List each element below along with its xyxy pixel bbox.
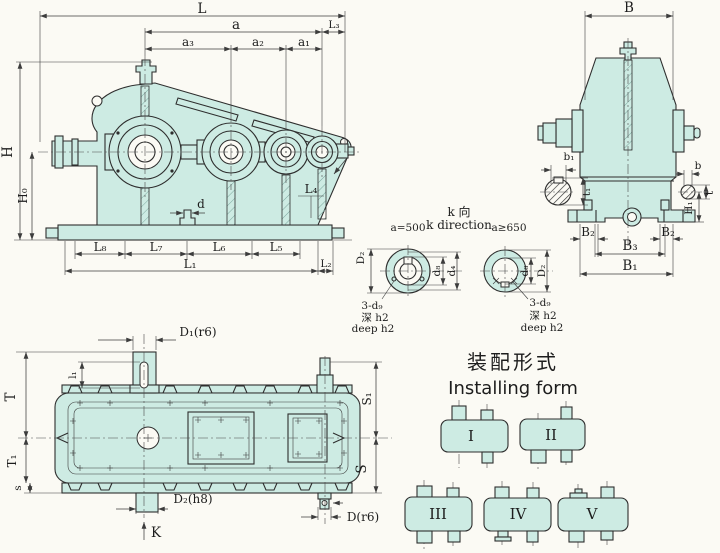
shaft-detail-right: a≥650 d₈ D₂ 3-d₉ 深 h2 deep h2 bbox=[480, 222, 563, 334]
dim-label-a2: a₂ bbox=[252, 35, 264, 49]
dim-label-L1: L₁ bbox=[184, 257, 197, 271]
dim-label-H1: H₁ bbox=[683, 201, 695, 214]
dim-label-H: H bbox=[0, 146, 16, 158]
depth-label-en: deep h2 bbox=[352, 323, 395, 335]
lifting-hole bbox=[92, 96, 102, 106]
form-label: IV bbox=[510, 505, 528, 523]
dim-label-L5: L₅ bbox=[270, 240, 283, 254]
holes-label: 3-d₉ bbox=[361, 300, 382, 312]
installing-form-panel: 装配形式 Installing form I II bbox=[405, 350, 628, 549]
condition-label: a≥650 bbox=[491, 222, 526, 234]
dim-label-b1: b₁ bbox=[564, 151, 575, 163]
dim-label-B2-left: B₂ bbox=[581, 225, 595, 239]
form-label: I bbox=[468, 427, 474, 445]
form-label: II bbox=[545, 426, 557, 444]
dim-label-a: a bbox=[232, 17, 240, 33]
dim-label-s: s bbox=[12, 485, 24, 490]
end-view: B b₁ t₁ b t H₁ B₂ B₂ B₃ B₁ bbox=[538, 0, 716, 277]
dim-label-D2-h8: D₂(h8) bbox=[173, 492, 212, 506]
dim-label-S: S bbox=[354, 464, 370, 473]
shaft-detail-views: k 向 k direction a=500 D₂ d₈ d₄ bbox=[352, 204, 564, 335]
dim-label-d8: d₈ bbox=[431, 266, 443, 277]
condition-label: a=500 bbox=[390, 222, 425, 234]
installing-form-5: V bbox=[558, 481, 628, 548]
drawing-canvas: L a L₃ a₃ a₂ a₁ H H₀ d L₈ L₇ L₆ L₅ L₄ L₁… bbox=[0, 0, 720, 553]
installing-form-3: III bbox=[405, 480, 472, 549]
depth-label-cn: 深 h2 bbox=[529, 310, 556, 322]
dim-label-L8: L₈ bbox=[94, 240, 107, 254]
dim-label-H0: H₀ bbox=[16, 188, 30, 203]
dim-label-L7: L₇ bbox=[150, 240, 163, 254]
dim-label-L2: L₂ bbox=[320, 258, 331, 270]
installing-form-title-cn: 装配形式 bbox=[467, 350, 559, 374]
dim-label-T1: T₁ bbox=[5, 455, 19, 468]
dim-label-B: B bbox=[624, 0, 634, 16]
dim-label-B3: B₃ bbox=[622, 238, 637, 254]
dim-label-B1: B₁ bbox=[622, 258, 637, 274]
dim-label-S1: S₁ bbox=[360, 392, 374, 405]
top-view: D₁(r6) l₁ T T₁ s S₁ S D₂(h8) D(r6) K bbox=[3, 325, 392, 541]
k-direction-label-en: k direction bbox=[426, 218, 492, 232]
dim-label-D2: D₂ bbox=[355, 252, 367, 265]
installing-form-title-en: Installing form bbox=[448, 378, 578, 399]
installing-form-1: I bbox=[441, 400, 508, 469]
dim-label-a3: a₃ bbox=[182, 35, 194, 49]
dim-label-a1: a₁ bbox=[298, 35, 310, 49]
dim-label-l1: l₁ bbox=[67, 371, 79, 379]
holes-label: 3-d₉ bbox=[529, 297, 550, 309]
installing-form-2: II bbox=[520, 401, 585, 469]
installing-form-4: IV bbox=[484, 481, 551, 548]
dim-label-d: d bbox=[197, 197, 205, 211]
form-label: III bbox=[429, 505, 447, 523]
vent-plug bbox=[136, 60, 156, 84]
dim-label-T: T bbox=[3, 392, 19, 401]
depth-label-en: deep h2 bbox=[521, 322, 564, 334]
side-view: L a L₃ a₃ a₂ a₁ H H₀ d L₈ L₇ L₆ L₅ L₄ L₁… bbox=[0, 1, 360, 275]
gearbox-dimension-drawing: L a L₃ a₃ a₂ a₁ H H₀ d L₈ L₇ L₆ L₅ L₄ L₁… bbox=[0, 0, 720, 553]
dim-label-b: b bbox=[695, 160, 702, 172]
dim-label-t1: t₁ bbox=[581, 188, 593, 196]
dim-label-D2: D₂ bbox=[536, 265, 548, 278]
dim-label-L4: L₄ bbox=[305, 182, 318, 196]
k-direction-label-cn: k 向 bbox=[447, 204, 470, 219]
view-arrow-label-K: K bbox=[151, 525, 162, 541]
form-label: V bbox=[586, 505, 599, 523]
dim-label-B2-right: B₂ bbox=[661, 225, 675, 239]
dim-label-d4: d₄ bbox=[446, 266, 458, 277]
dim-label-L: L bbox=[198, 1, 207, 17]
dim-label-D-r6: D(r6) bbox=[347, 510, 379, 524]
dim-label-L3: L₃ bbox=[328, 19, 339, 31]
dim-label-D1: D₁(r6) bbox=[179, 325, 216, 339]
dim-label-d8: d₈ bbox=[519, 266, 531, 277]
dim-label-L6: L₆ bbox=[213, 240, 226, 254]
shaft-detail-left: a=500 D₂ d₈ d₄ 3-d₉ 深 h2 deep h2 bbox=[352, 222, 462, 335]
